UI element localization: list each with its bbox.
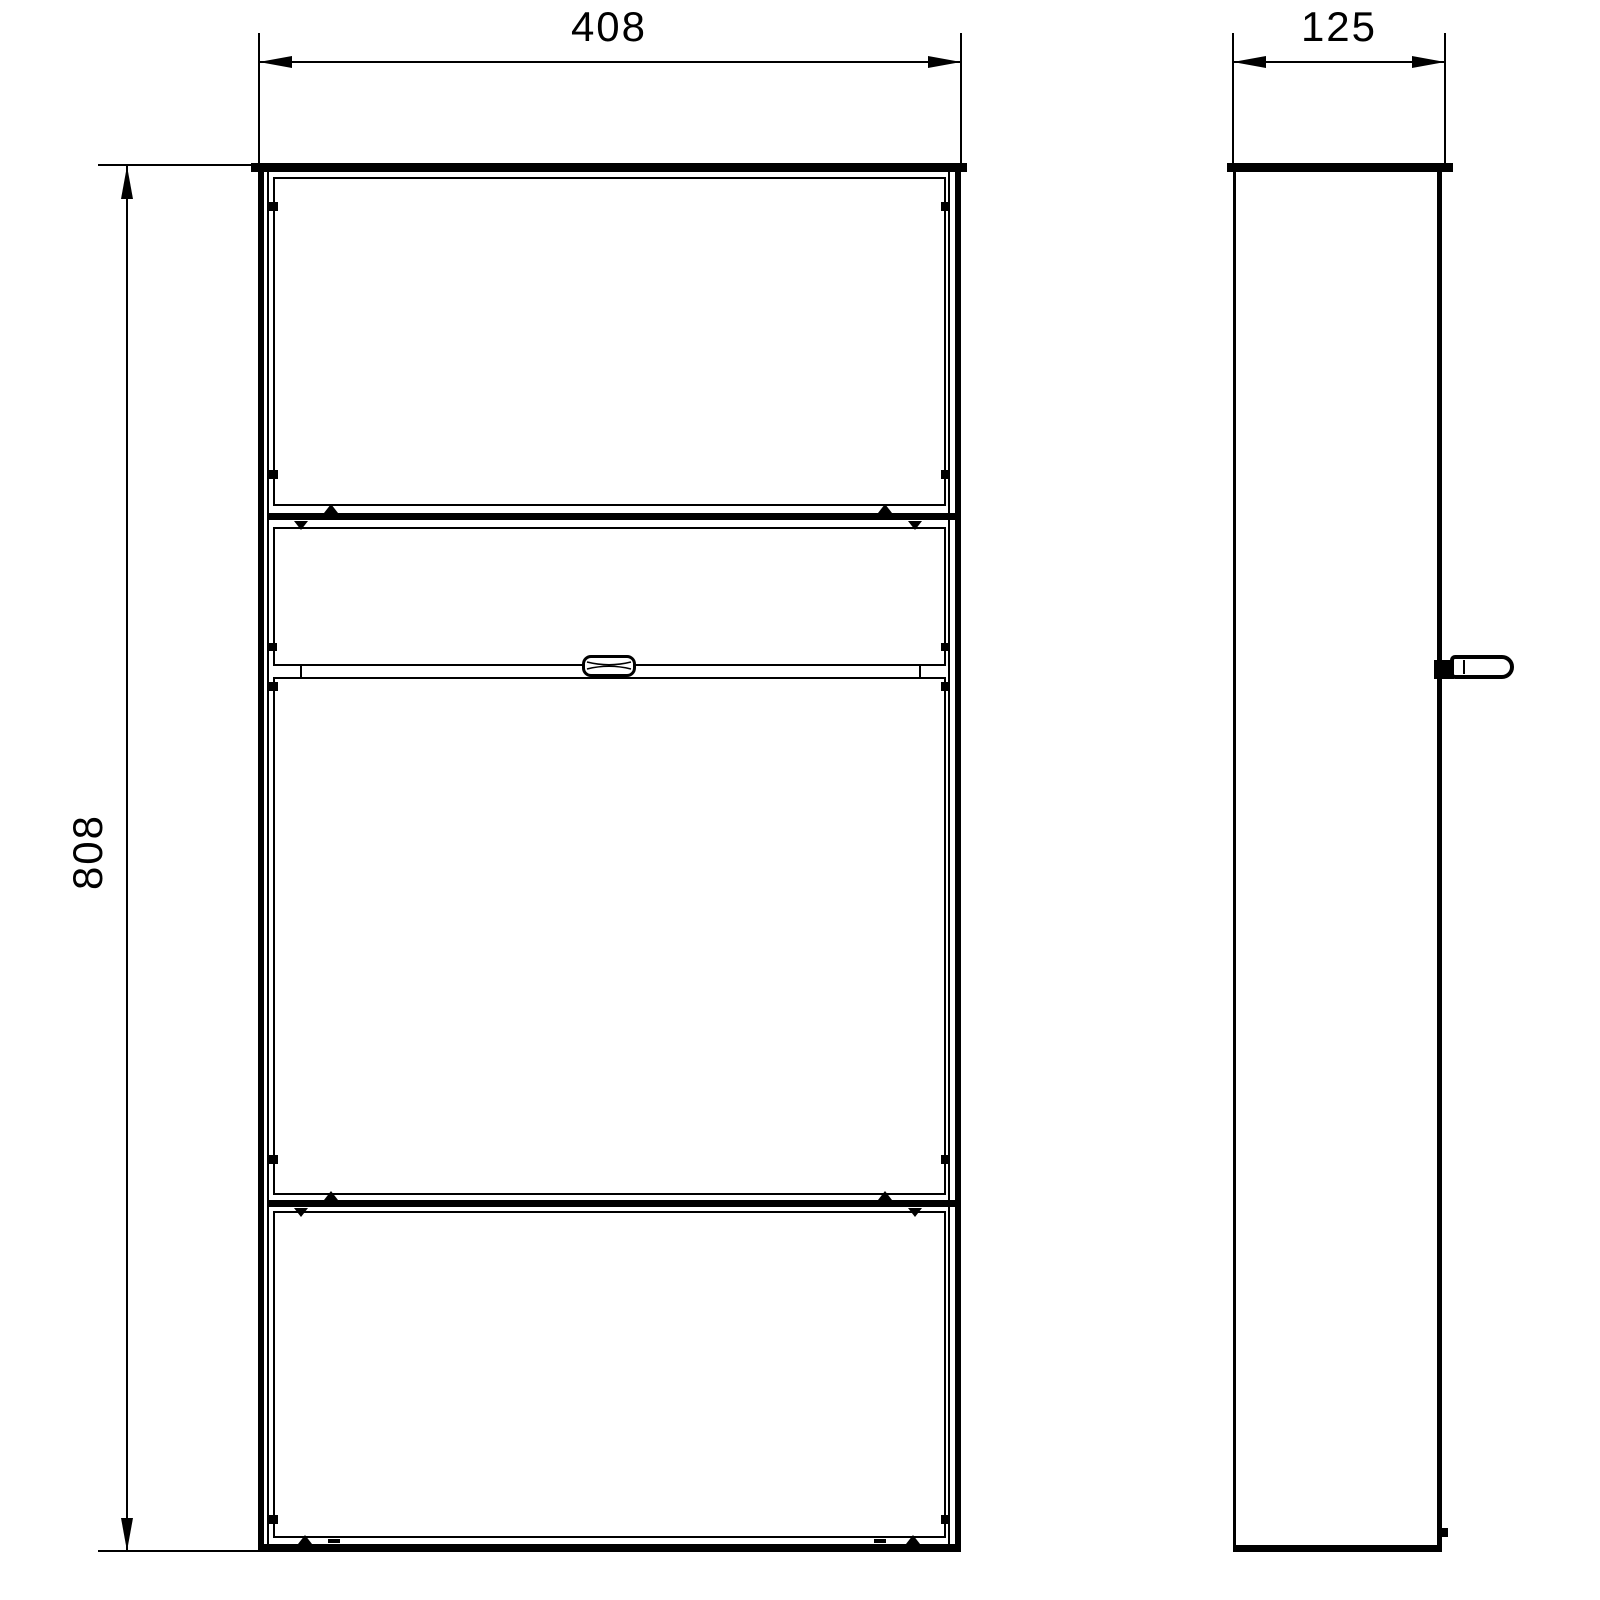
pivot-arrow-down-icon: [294, 521, 308, 530]
hinge-tick: [269, 470, 278, 479]
height-dim-arrow-up-icon: [121, 166, 133, 199]
depth-dimension-label: 125: [1239, 6, 1439, 48]
width-dimension-line: [259, 61, 961, 63]
front-left-wall-inner-line: [267, 172, 269, 1544]
hinge-tick: [941, 682, 950, 691]
front-top-cap: [251, 163, 967, 172]
hinge-tick: [269, 1155, 278, 1164]
pivot-mark: [328, 1539, 340, 1543]
hinge-tick: [269, 643, 277, 651]
pivot-arrow-down-icon: [908, 521, 922, 530]
pivot-arrow-up-icon: [878, 504, 892, 513]
front-flap-panel-2: [273, 527, 946, 666]
pivot-arrow-up-icon: [906, 1535, 920, 1544]
front-flap-panel-3: [273, 677, 946, 1195]
side-left-edge: [1233, 172, 1236, 1552]
hinge-tick: [269, 1515, 278, 1524]
height-dimension-label: 808: [67, 752, 109, 952]
hinge-tick: [941, 202, 950, 211]
front-divider-connector-right: [919, 664, 921, 679]
hinge-tick: [269, 682, 278, 691]
technical-drawing-canvas: 408 808 125: [0, 0, 1600, 1600]
front-right-wall: [955, 172, 961, 1552]
side-handle: [1450, 655, 1514, 679]
pivot-arrow-up-icon: [298, 1535, 312, 1544]
side-pivot-tick: [1442, 1528, 1448, 1537]
pivot-mark: [874, 1539, 886, 1543]
front-divider-rail-1: [267, 513, 957, 520]
hinge-tick: [941, 1515, 950, 1524]
depth-dim-arrow-left-icon: [1233, 56, 1266, 68]
front-flap-panel-4: [273, 1211, 946, 1538]
side-handle-detail-line: [1463, 660, 1465, 674]
hinge-tick: [941, 470, 950, 479]
width-dim-arrow-left-icon: [259, 56, 292, 68]
front-right-wall-inner-line: [948, 172, 950, 1544]
front-divider-connector-left: [300, 664, 302, 679]
side-bottom-edge: [1233, 1545, 1442, 1552]
front-handle: [582, 655, 636, 677]
hinge-tick: [269, 202, 278, 211]
depth-extension-line-right: [1444, 33, 1446, 164]
front-handle-detail-icon: [585, 658, 633, 674]
pivot-arrow-down-icon: [294, 1208, 308, 1217]
hinge-tick: [941, 643, 949, 651]
pivot-arrow-up-icon: [324, 1191, 338, 1200]
side-top-cap: [1227, 163, 1453, 172]
pivot-arrow-down-icon: [908, 1208, 922, 1217]
depth-extension-line-left: [1232, 33, 1234, 164]
front-divider-rail-2: [267, 1200, 957, 1207]
depth-dim-arrow-right-icon: [1412, 56, 1445, 68]
side-right-edge: [1437, 172, 1442, 1552]
height-dimension-line: [126, 165, 128, 1551]
hinge-tick: [941, 1155, 950, 1164]
width-extension-line-left: [258, 33, 260, 164]
height-extension-line-bottom: [98, 1550, 272, 1552]
pivot-arrow-up-icon: [324, 504, 338, 513]
front-left-wall: [258, 172, 264, 1552]
front-bottom-edge: [258, 1544, 961, 1552]
front-flap-panel-1: [273, 177, 946, 506]
width-dimension-label: 408: [509, 6, 709, 48]
pivot-arrow-up-icon: [878, 1191, 892, 1200]
height-extension-line-top: [98, 164, 255, 166]
width-dim-arrow-right-icon: [928, 56, 961, 68]
height-dim-arrow-down-icon: [121, 1518, 133, 1551]
width-extension-line-right: [960, 33, 962, 164]
